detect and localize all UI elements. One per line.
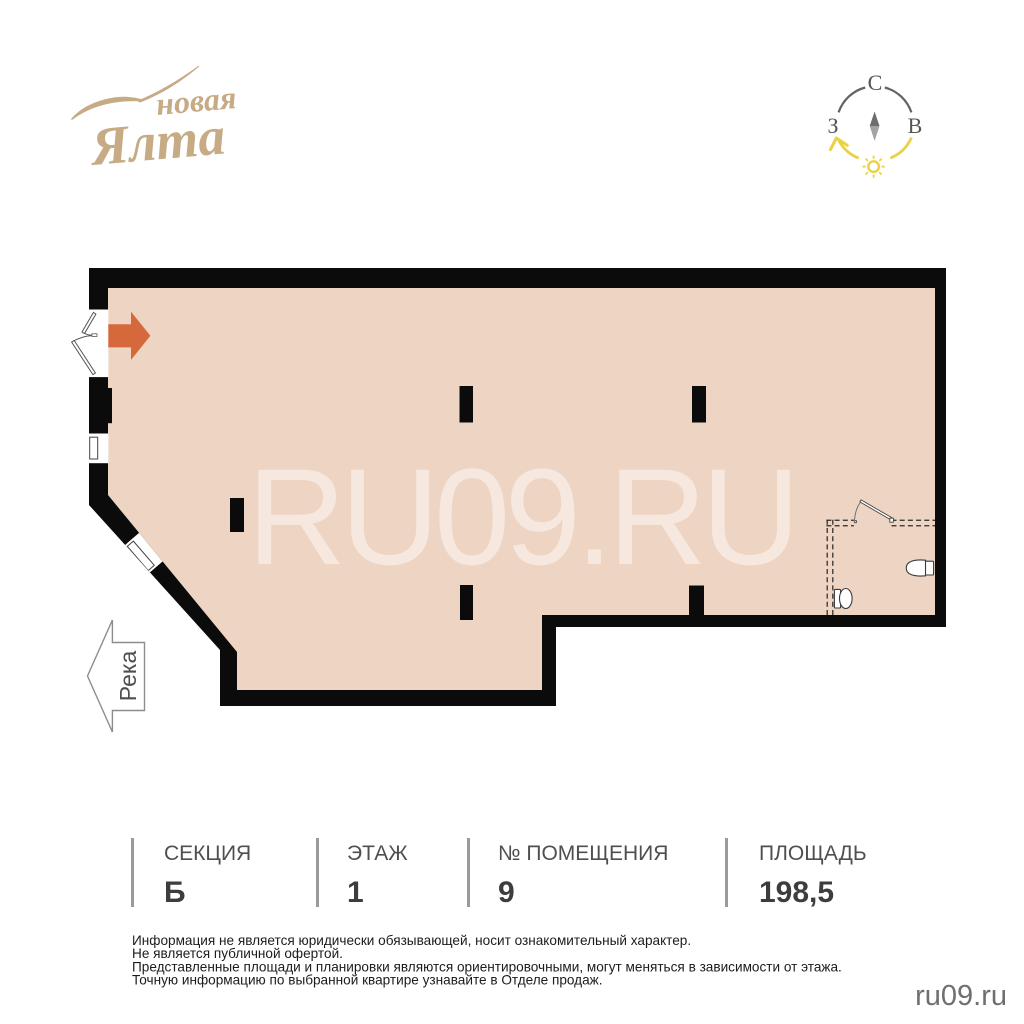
svg-text:Б: Б <box>164 876 186 909</box>
svg-text:С: С <box>868 70 883 95</box>
svg-text:RU09.RU: RU09.RU <box>247 441 795 594</box>
svg-text:№ ПОМЕЩЕНИЯ: № ПОМЕЩЕНИЯ <box>498 842 668 865</box>
svg-text:В: В <box>908 113 923 138</box>
svg-text:ЭТАЖ: ЭТАЖ <box>347 842 408 865</box>
svg-text:Точную информацию по выбранной: Точную информацию по выбранной квартире … <box>132 973 603 988</box>
svg-text:ru09.ru: ru09.ru <box>915 980 1007 1012</box>
svg-text:З: З <box>827 113 838 138</box>
svg-text:СЕКЦИЯ: СЕКЦИЯ <box>164 842 251 865</box>
svg-text:Река: Река <box>115 651 141 702</box>
svg-text:9: 9 <box>498 876 515 909</box>
svg-text:1: 1 <box>347 876 364 909</box>
svg-text:Ялта: Ялта <box>87 106 228 178</box>
svg-text:198,5: 198,5 <box>759 876 834 909</box>
svg-text:ПЛОЩАДЬ: ПЛОЩАДЬ <box>759 842 867 865</box>
